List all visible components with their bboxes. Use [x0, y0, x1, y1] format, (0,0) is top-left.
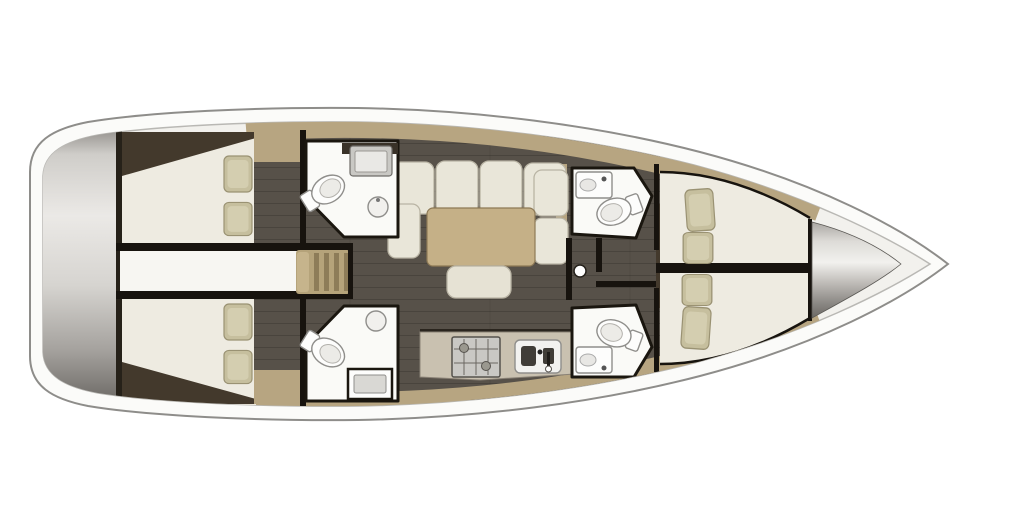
salon-table	[427, 208, 535, 266]
bulkhead	[654, 288, 659, 372]
faucet	[602, 366, 607, 371]
burner	[482, 362, 491, 371]
yacht-floorplan-canvas	[0, 0, 1024, 512]
bulkhead	[566, 238, 572, 300]
step-slat	[324, 253, 329, 291]
mast	[574, 265, 586, 277]
corridor-wall-top	[116, 243, 352, 251]
sofa-cushion-right	[534, 170, 568, 216]
pillow	[224, 202, 252, 235]
faucet	[538, 350, 543, 355]
faucet-base	[546, 366, 552, 372]
pillow	[685, 188, 716, 231]
pillow	[682, 275, 712, 306]
burner	[460, 344, 469, 353]
sink-basin	[580, 354, 596, 366]
step-slat	[314, 253, 319, 291]
sink-basin	[580, 179, 596, 191]
sofa-cushion-right	[534, 218, 568, 264]
swim-platform	[43, 130, 119, 398]
sink-basin	[355, 151, 387, 172]
steps-wall	[348, 243, 353, 299]
sink-bowl-left	[521, 346, 536, 366]
ottoman	[447, 266, 511, 298]
pillow	[224, 304, 252, 340]
steps-cap	[297, 252, 309, 292]
pillow	[681, 306, 712, 349]
galley-sink	[515, 340, 561, 373]
stern-corridor	[120, 250, 298, 294]
pillow	[683, 233, 713, 264]
berth-divider	[656, 263, 810, 273]
stove	[452, 337, 500, 377]
aft-cabin-floor-top-planks	[254, 162, 302, 248]
floorplan-svg	[0, 0, 1024, 512]
head-top-right	[572, 168, 652, 238]
wardrobe-top	[254, 127, 302, 164]
faucet-stem	[547, 352, 550, 367]
pillow	[224, 156, 252, 192]
wardrobe-bottom	[254, 368, 302, 404]
step-slat	[334, 253, 339, 291]
aft-cabin-bottom	[122, 288, 306, 406]
pillow	[224, 350, 252, 383]
head-bottom-right	[572, 305, 652, 377]
aft-cabin-top	[122, 127, 306, 248]
sofa-cushion	[436, 161, 478, 214]
bulkhead	[596, 281, 658, 287]
companionway-steps	[296, 243, 353, 299]
faucet	[602, 177, 607, 182]
bulkhead	[596, 238, 602, 272]
bulkhead	[654, 164, 659, 250]
sofa-cushion	[480, 161, 522, 214]
drain-dot	[376, 198, 380, 202]
aft-cabin-floor-bottom-planks	[254, 290, 302, 370]
bow-bulkhead	[808, 219, 812, 321]
galley	[420, 329, 578, 380]
round-basin	[366, 311, 386, 331]
sink-basin	[354, 375, 386, 393]
